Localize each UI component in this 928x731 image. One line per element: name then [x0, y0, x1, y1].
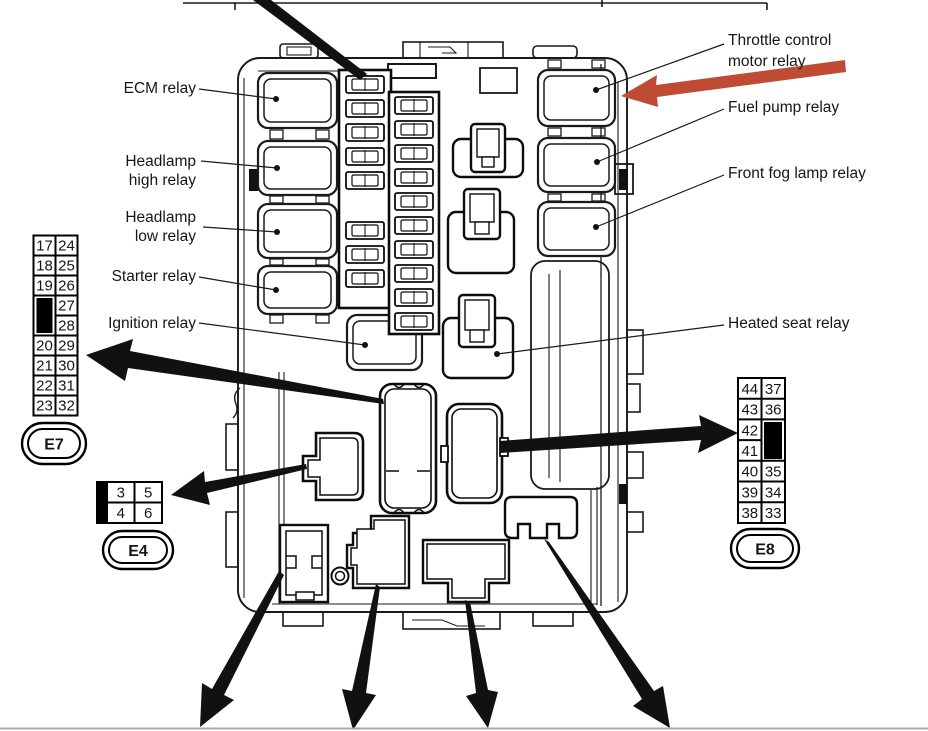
fuse-columns	[339, 70, 439, 334]
tall-connectors	[380, 384, 508, 513]
fuse-box-diagram-page: 1724 1825 1926 27 28 2029 2130 2231 2332…	[0, 0, 928, 731]
e7-cell: 17	[36, 238, 53, 255]
e4-cell: 4	[117, 505, 125, 522]
arrow-down-3	[465, 600, 498, 728]
label-front-fog-relay: Front fog lamp relay	[728, 165, 866, 182]
heated-seat-relay-shape	[443, 295, 513, 378]
e8-cell: 43	[741, 402, 758, 419]
arrow-down-4	[544, 539, 670, 728]
pin-table-e4: 3 5 4 6 E4	[97, 482, 173, 569]
e8-cell: 39	[741, 484, 758, 501]
e8-cell: 38	[741, 505, 758, 522]
label-headlamp-low-line1: Headlamp	[125, 209, 196, 226]
arrow-from-top	[253, 0, 367, 80]
label-throttle-line2: motor relay	[728, 53, 806, 70]
label-headlamp-low-line2: low relay	[135, 228, 196, 245]
e8-cell: 40	[741, 464, 758, 481]
e4-label: E4	[128, 543, 148, 560]
bottom-connector-1	[280, 525, 328, 602]
e7-cell: 18	[36, 258, 53, 275]
connector-plug-middle	[448, 189, 514, 273]
e7-cell: 26	[58, 278, 75, 295]
e7-label: E7	[44, 437, 64, 454]
e8-label: E8	[755, 542, 775, 559]
bottom-connector-4	[505, 497, 577, 538]
right-relay-bank	[538, 60, 615, 256]
arrow-down-2	[342, 584, 380, 730]
right-inner-panel	[531, 261, 609, 489]
slot-connector-e8-target	[441, 404, 508, 503]
e7-cell: 21	[36, 358, 53, 375]
bottom-connector-3	[423, 540, 509, 602]
e7-cell: 30	[58, 358, 75, 375]
pin-table-e7: 1724 1825 1926 27 28 2029 2130 2231 2332…	[22, 236, 86, 465]
pin-table-e8: 4437 4336 42 41 4035 3934 3833 E8	[731, 378, 799, 568]
e8-cell: 42	[741, 422, 758, 439]
bottom-connector-2	[347, 516, 409, 588]
label-ignition-relay: Ignition relay	[108, 315, 196, 332]
e8-cell: 35	[765, 464, 782, 481]
notched-connector-e4-target	[303, 433, 363, 500]
e8-cell: 41	[741, 443, 758, 460]
label-headlamp-high-line2: high relay	[129, 172, 196, 189]
slot-connector-e7-target	[380, 384, 436, 513]
fuse-box-diagram: 1724 1825 1926 27 28 2029 2130 2231 2332…	[0, 0, 928, 731]
e7-cell: 23	[36, 398, 53, 415]
left-relay-bank	[258, 73, 337, 323]
e7-cell: 32	[58, 398, 75, 415]
connector-plug-top	[453, 124, 523, 177]
e7-cell: 31	[58, 378, 75, 395]
e8-cell: 37	[765, 381, 782, 398]
e7-cell: 27	[58, 298, 75, 315]
label-heated-seat-relay: Heated seat relay	[728, 315, 850, 332]
e4-cell: 3	[117, 485, 125, 502]
e7-cell: 19	[36, 278, 53, 295]
e8-cell: 34	[765, 484, 782, 501]
label-throttle-line1: Throttle control	[728, 32, 831, 49]
label-starter-relay: Starter relay	[112, 268, 197, 285]
e4-cell: 6	[144, 505, 152, 522]
label-headlamp-high-line1: Headlamp	[125, 153, 196, 170]
e7-cell: 24	[58, 238, 75, 255]
label-ecm-relay: ECM relay	[124, 80, 197, 97]
e8-cell: 33	[765, 505, 782, 522]
e4-cell: 5	[144, 485, 152, 502]
arrow-to-e4	[171, 464, 307, 505]
arrow-down-1	[200, 571, 284, 727]
e7-cell: 22	[36, 378, 53, 395]
e8-cell: 36	[765, 402, 782, 419]
e7-cell: 29	[58, 338, 75, 355]
label-fuel-pump-relay: Fuel pump relay	[728, 99, 839, 116]
arrow-to-e8	[500, 415, 738, 453]
e7-cell: 20	[36, 338, 53, 355]
center-connectors	[443, 124, 523, 378]
e8-cell: 44	[741, 381, 758, 398]
e7-cell: 28	[58, 318, 75, 335]
e7-cell: 25	[58, 258, 75, 275]
